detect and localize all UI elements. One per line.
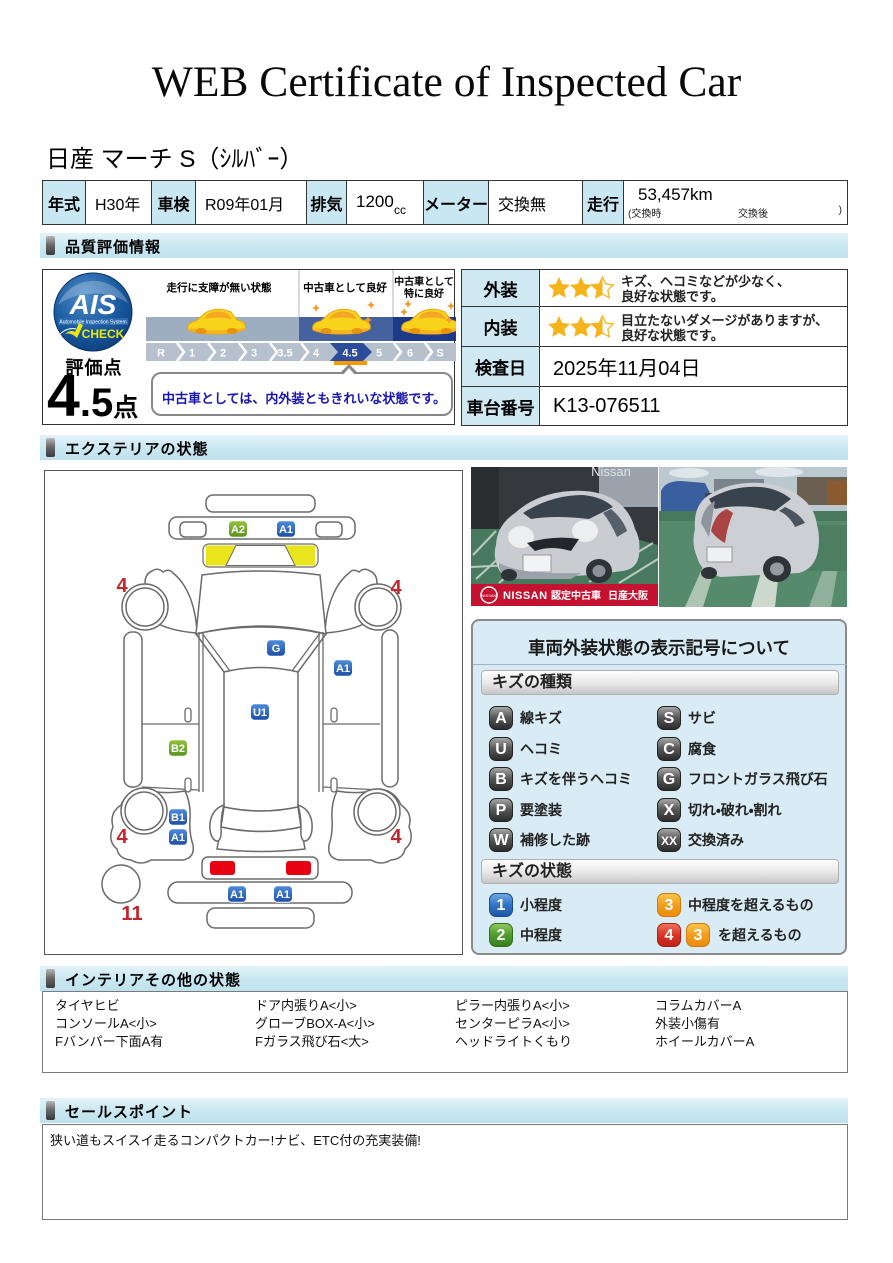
svg-text:CHECK: CHECK xyxy=(82,327,125,341)
svg-text:A1: A1 xyxy=(336,663,350,675)
svg-text:11: 11 xyxy=(121,903,142,925)
svg-text:1: 1 xyxy=(189,348,195,360)
svg-text:走行に支障が無い状態: 走行に支障が無い状態 xyxy=(166,281,272,294)
svg-text:A1: A1 xyxy=(230,889,244,901)
svg-text:R: R xyxy=(157,348,165,360)
svg-text:4: 4 xyxy=(116,826,128,848)
svg-text:NISSAN: NISSAN xyxy=(482,593,497,598)
svg-text:A1: A1 xyxy=(276,889,290,901)
svg-text:B1: B1 xyxy=(171,812,185,824)
svg-text:Automobile Inspection System: Automobile Inspection System xyxy=(59,320,126,326)
svg-text:AIS: AIS xyxy=(69,289,117,320)
svg-text:Nissan: Nissan xyxy=(591,467,631,479)
svg-text:G: G xyxy=(272,643,281,655)
svg-text:中古車として: 中古車として xyxy=(394,275,454,288)
svg-text:3.5: 3.5 xyxy=(277,348,292,360)
svg-text:4: 4 xyxy=(116,575,128,597)
svg-text:日産大阪: 日産大阪 xyxy=(608,589,649,602)
svg-text:S: S xyxy=(436,348,443,360)
svg-text:3: 3 xyxy=(251,348,257,360)
svg-text:A1: A1 xyxy=(279,524,293,536)
svg-text:NISSAN: NISSAN xyxy=(503,590,548,602)
svg-text:6: 6 xyxy=(407,348,413,360)
svg-text:U1: U1 xyxy=(253,707,267,719)
svg-text:B2: B2 xyxy=(171,743,185,755)
svg-text:A1: A1 xyxy=(171,832,185,844)
svg-text:認定中古車: 認定中古車 xyxy=(551,589,601,602)
svg-text:5: 5 xyxy=(376,348,382,360)
svg-text:特に良好: 特に良好 xyxy=(404,287,444,300)
svg-text:4: 4 xyxy=(390,577,402,599)
svg-text:4.5: 4.5 xyxy=(342,348,357,360)
svg-text:2: 2 xyxy=(220,348,226,360)
svg-text:中古車として良好: 中古車として良好 xyxy=(303,281,387,294)
svg-text:A2: A2 xyxy=(231,524,245,536)
svg-text:4: 4 xyxy=(390,826,402,848)
svg-text:4: 4 xyxy=(313,348,320,360)
